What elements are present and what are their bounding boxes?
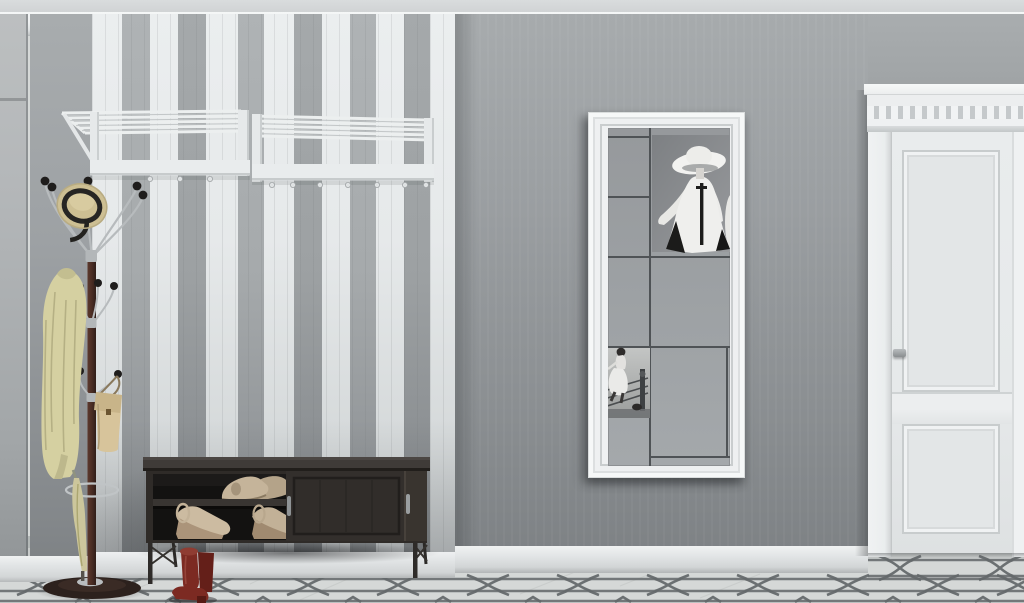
mirror-reflection — [604, 128, 739, 466]
handbag — [94, 376, 122, 452]
rack-hook-knob — [345, 182, 350, 187]
shoe-bench — [136, 457, 440, 584]
bench-front-leg-left — [148, 542, 153, 584]
rack-hook-knob — [402, 182, 407, 187]
rack-hook-knob — [269, 182, 274, 187]
reflected-fashion-poster — [652, 135, 739, 253]
reflected-boxing-photo — [604, 348, 650, 418]
hat-rack-right — [252, 114, 434, 185]
umbrella — [72, 470, 87, 581]
coat-stand — [36, 177, 148, 601]
bench-handle-left — [287, 496, 291, 516]
scene-artwork-layer — [0, 0, 1024, 603]
rack-hook-knob — [317, 182, 322, 187]
bench-shelf — [153, 499, 286, 506]
rack-hook-knob — [290, 182, 295, 187]
hat-rack-left — [62, 110, 250, 180]
bench-sliding-doors — [286, 469, 427, 541]
rack-hook-knob — [147, 176, 152, 181]
chrome-collar-top — [86, 250, 98, 262]
bench-handle-right — [406, 494, 410, 514]
rack-hook-knob — [207, 176, 212, 181]
boot-heel — [197, 596, 206, 603]
hanging-coat — [41, 268, 86, 479]
hallway-scene — [0, 0, 1024, 603]
rack-hook-knob — [374, 182, 379, 187]
rack-hook-knob — [177, 176, 182, 181]
second-mannequin-sliver — [725, 194, 739, 250]
bench-front-leg-right — [413, 542, 418, 578]
boot-cuff — [180, 548, 198, 556]
wall-hat-racks — [62, 110, 434, 188]
low-hook-balls — [76, 367, 122, 378]
stand-pole — [88, 253, 97, 585]
rack-hook-knob — [423, 182, 428, 187]
